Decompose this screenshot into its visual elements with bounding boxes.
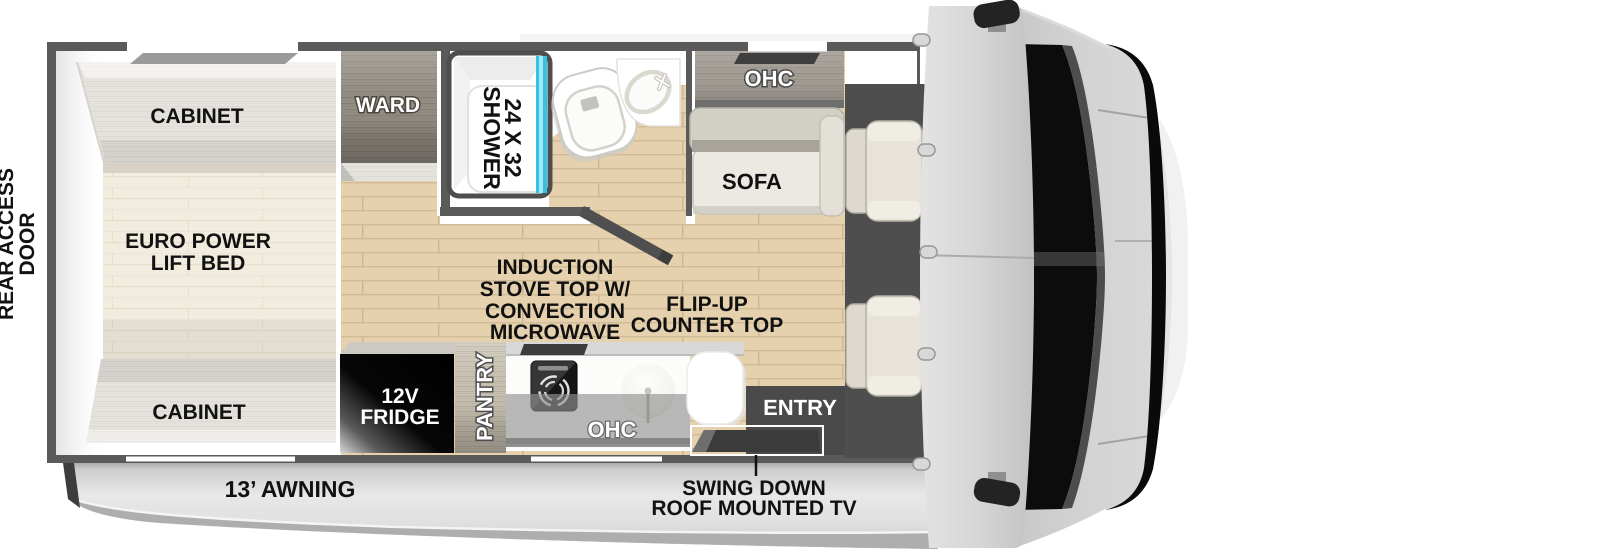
svg-text:12V: 12V — [381, 385, 418, 408]
svg-text:DOOR: DOOR — [16, 213, 39, 276]
svg-text:OHC: OHC — [588, 417, 637, 442]
svg-text:CABINET: CABINET — [152, 401, 246, 424]
svg-text:CONVECTION: CONVECTION — [485, 300, 625, 323]
svg-text:13’ AWNING: 13’ AWNING — [225, 476, 356, 502]
svg-text:FLIP-UP: FLIP-UP — [666, 293, 748, 316]
svg-text:MICROWAVE: MICROWAVE — [490, 321, 620, 344]
svg-text:CABINET: CABINET — [150, 105, 244, 128]
svg-text:FRIDGE: FRIDGE — [360, 406, 439, 429]
svg-text:COUNTER TOP: COUNTER TOP — [631, 314, 783, 337]
svg-text:SOFA: SOFA — [722, 169, 782, 194]
svg-text:OHC: OHC — [745, 66, 794, 91]
svg-text:PANTRY: PANTRY — [472, 353, 497, 441]
svg-text:INDUCTION: INDUCTION — [497, 256, 614, 279]
svg-text:WARD: WARD — [356, 94, 420, 117]
svg-text:EURO POWER: EURO POWER — [125, 230, 271, 253]
svg-text:LIFT BED: LIFT BED — [151, 252, 246, 275]
svg-text:ROOF MOUNTED TV: ROOF MOUNTED TV — [651, 497, 856, 520]
svg-text:ENTRY: ENTRY — [763, 395, 837, 420]
svg-text:SHOWER: SHOWER — [479, 86, 505, 190]
svg-text:STOVE TOP W/: STOVE TOP W/ — [480, 278, 631, 301]
